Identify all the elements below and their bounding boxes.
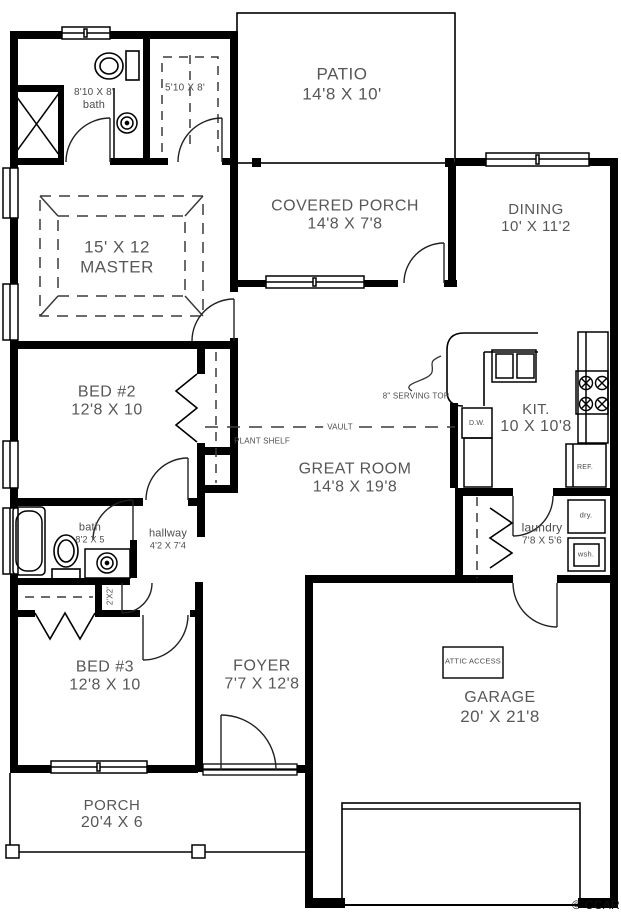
room-label-garage: GARAGE 20' X 21'8 xyxy=(460,689,540,727)
room-name: BED #2 xyxy=(71,384,143,402)
room-name: PATIO xyxy=(302,64,382,84)
front-door-sill xyxy=(203,764,297,775)
room-name: BED #3 xyxy=(69,659,141,677)
room-name: bath xyxy=(74,98,114,111)
floor-plan-drawing xyxy=(0,0,621,917)
room-dims: 20' X 21'8 xyxy=(460,707,540,727)
window xyxy=(3,284,18,340)
vanity-sink-icon xyxy=(114,88,137,159)
room-label-master-bath: 8'10 X 8' bath xyxy=(74,87,114,111)
room-dims: 7'7 X 12'8 xyxy=(224,676,299,694)
bed2-door xyxy=(146,458,188,500)
room-dims: 12'8 X 10 xyxy=(71,402,143,420)
room-dims: 8'2 X 5 xyxy=(75,534,104,544)
room-name: MASTER xyxy=(80,257,154,277)
porch-outline xyxy=(10,773,305,852)
room-name: FOYER xyxy=(224,658,299,676)
kitchen-sink-icon xyxy=(492,350,536,382)
room-label-master: 15' X 12 MASTER xyxy=(80,237,154,276)
window xyxy=(51,761,147,773)
refrigerator-label: REF. xyxy=(577,464,593,472)
master-bath-door xyxy=(66,118,110,162)
room-dims: 4'2 X 7'4 xyxy=(149,540,187,550)
room-dims: 10' X 11'2 xyxy=(501,218,571,235)
room-dims: 8'10 X 8' xyxy=(74,87,114,99)
stove-icon xyxy=(580,377,609,411)
room-label-bed-2: BED #2 12'8 X 10 xyxy=(71,384,143,421)
closet-rods xyxy=(25,55,477,597)
bed3-closet-bifold xyxy=(35,613,95,639)
room-dims: 20'4 X 6 xyxy=(81,814,143,832)
serving-top-label: 8" SERVING TOP xyxy=(383,391,450,400)
room-name: DINING xyxy=(501,201,571,218)
dryer-label: dry. xyxy=(580,512,593,521)
vanity-sink-icon xyxy=(85,549,130,578)
garage-entry-door xyxy=(513,583,557,627)
room-dims: 14'8 X 7'8 xyxy=(271,216,419,234)
room-label-covered-porch: COVERED PORCH 14'8 X 7'8 xyxy=(271,198,419,235)
room-name: laundry xyxy=(522,521,563,535)
room-label-porch: PORCH 20'4 X 6 xyxy=(81,797,143,833)
room-dims: 10 X 10'8 xyxy=(500,418,572,436)
room-dims: 14'8 X 19'8 xyxy=(299,479,412,497)
bed3-door xyxy=(143,615,188,660)
room-label-kitchen: KIT. 10 X 10'8 xyxy=(500,401,572,437)
room-name: GREAT ROOM xyxy=(299,461,412,479)
room-name: hallway xyxy=(149,528,187,541)
window xyxy=(266,276,364,288)
window xyxy=(3,168,18,218)
room-label-patio: PATIO 14'8 X 10' xyxy=(302,64,382,103)
plant-shelf-label: PLANT SHELF xyxy=(234,436,290,445)
room-name: GARAGE xyxy=(460,689,540,707)
room-label-bed-3: BED #3 12'8 X 10 xyxy=(69,659,141,696)
porch-door xyxy=(404,243,444,283)
room-name: bath xyxy=(75,522,104,535)
window xyxy=(486,153,589,166)
room-label-dining: DINING 10' X 11'2 xyxy=(501,201,571,236)
copyright-label: © CCAR xyxy=(572,899,620,913)
room-name: KIT. xyxy=(500,401,572,418)
room-label-foyer: FOYER 7'7 X 12'8 xyxy=(224,658,299,695)
washer-label: wsh. xyxy=(578,551,594,560)
floor-plan: PATIO 14'8 X 10' COVERED PORCH 14'8 X 7'… xyxy=(0,0,621,917)
window xyxy=(3,441,18,488)
serving-top-leader xyxy=(409,356,441,391)
room-dims: 5'10 X 8' xyxy=(165,82,205,94)
attic-access-label: ATTIC ACCESS xyxy=(445,658,501,667)
hall-closet-door xyxy=(122,583,152,613)
window xyxy=(62,27,110,39)
shower-icon xyxy=(11,89,62,159)
room-name: PORCH xyxy=(81,797,143,814)
room-label-master-closet: 5'10 X 8' xyxy=(165,82,205,94)
room-label-hall-bath: bath 8'2 X 5 xyxy=(75,522,104,545)
master-closet-door xyxy=(178,118,222,162)
front-door xyxy=(221,715,276,770)
pantry-bifold xyxy=(490,508,512,568)
dishwasher-label: D.W. xyxy=(469,420,485,428)
room-label-laundry: laundry 7'8 X 5'6 xyxy=(522,521,563,546)
room-dims: 12'8 X 10 xyxy=(69,677,141,695)
vault-label: VAULT xyxy=(323,422,357,431)
bed2-closet-bifold xyxy=(176,374,197,442)
closet-2x2-label: 2'X2' xyxy=(105,587,114,605)
room-dims: 15' X 12 xyxy=(80,237,154,257)
room-dims: 14'8 X 10' xyxy=(302,84,382,104)
room-label-great-room: GREAT ROOM 14'8 X 19'8 xyxy=(299,461,412,498)
garage-door xyxy=(342,803,580,905)
room-label-hallway: hallway 4'2 X 7'4 xyxy=(149,528,187,551)
room-name: COVERED PORCH xyxy=(271,198,419,216)
toilet-icon xyxy=(95,51,139,80)
room-dims: 7'8 X 5'6 xyxy=(522,535,563,547)
master-door xyxy=(192,299,234,341)
